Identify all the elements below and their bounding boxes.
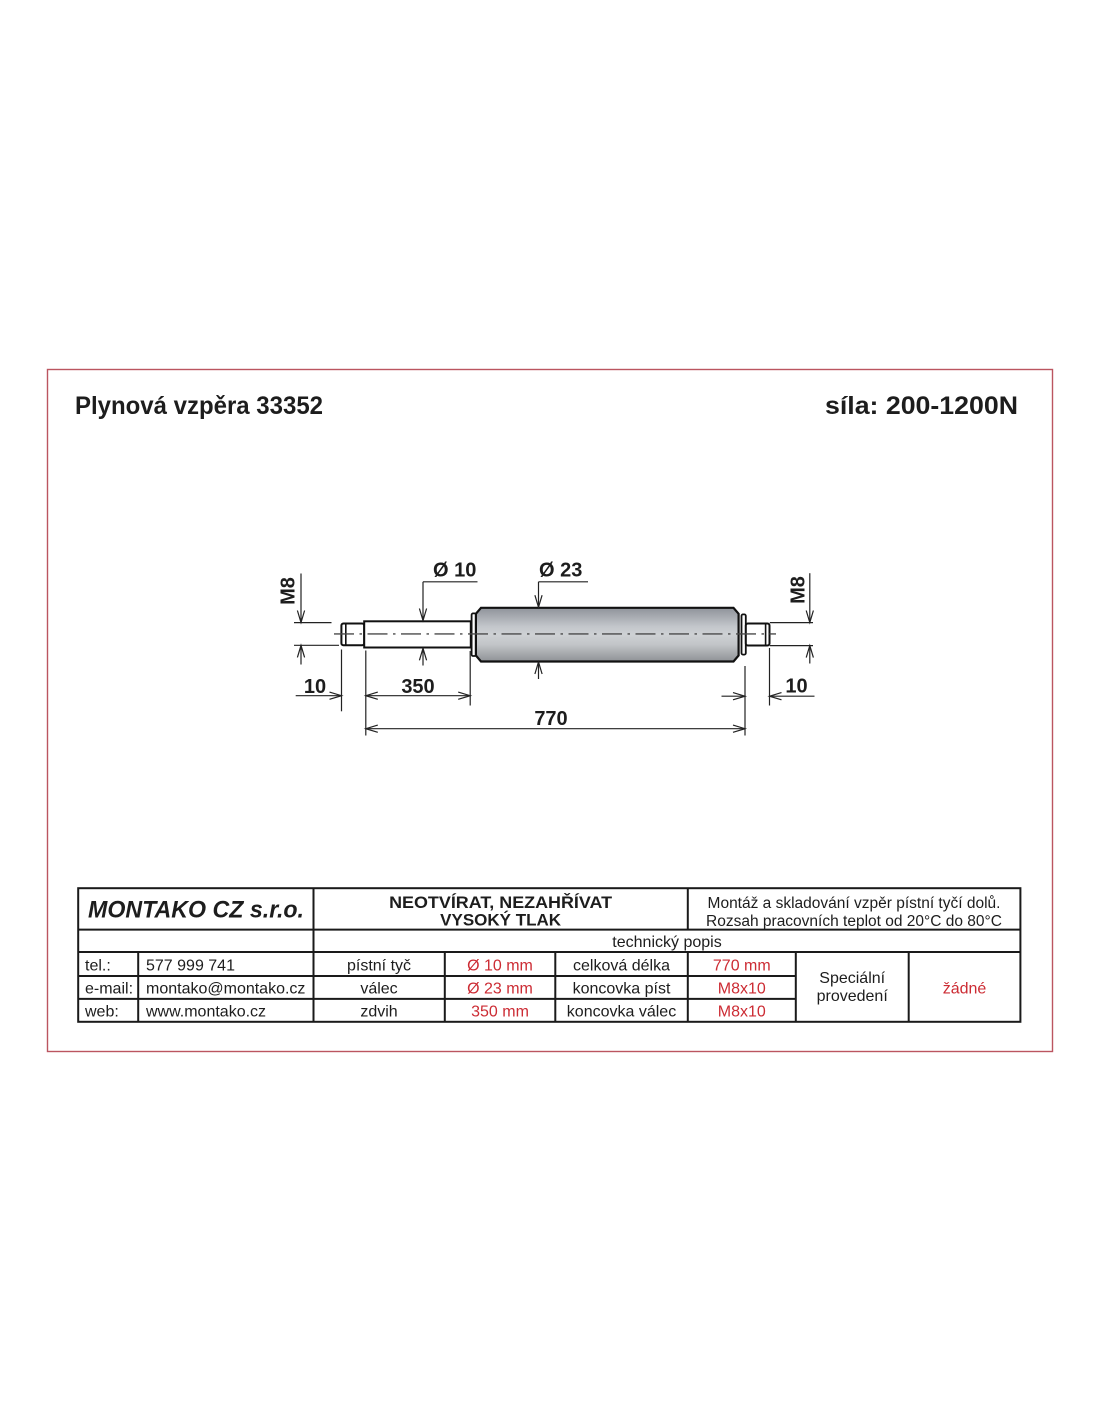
svg-text:Plynová vzpěra 33352: Plynová vzpěra 33352 (75, 392, 323, 420)
svg-text:M8: M8 (278, 577, 300, 605)
svg-text:web:: web: (84, 1004, 119, 1021)
svg-text:zdvih: zdvih (360, 1004, 397, 1021)
svg-text:pístní tyč: pístní tyč (347, 958, 411, 975)
svg-text:síla: 200-1200N: síla: 200-1200N (825, 392, 1018, 420)
svg-text:577 999 741: 577 999 741 (146, 958, 235, 975)
svg-text:válec: válec (360, 981, 397, 998)
svg-text:koncovka válec: koncovka válec (567, 1004, 676, 1021)
svg-text:350: 350 (401, 676, 434, 698)
svg-text:NEOTVÍRAT, NEZAHŘÍVAT: NEOTVÍRAT, NEZAHŘÍVAT (389, 893, 613, 912)
svg-text:Ø 10 mm: Ø 10 mm (467, 958, 533, 975)
svg-text:Speciální: Speciální (819, 970, 885, 987)
svg-text:technický popis: technický popis (612, 934, 721, 951)
svg-text:M8: M8 (788, 576, 810, 604)
svg-text:koncovka píst: koncovka píst (573, 981, 671, 998)
svg-text:Ø 23: Ø 23 (539, 560, 582, 582)
svg-text:provedení: provedení (817, 988, 889, 1005)
svg-text:10: 10 (785, 676, 807, 698)
svg-text:770: 770 (534, 708, 567, 730)
svg-text:montako@montako.cz: montako@montako.cz (146, 981, 305, 998)
svg-text:10: 10 (304, 676, 326, 698)
svg-text:VYSOKÝ TLAK: VYSOKÝ TLAK (440, 911, 562, 930)
svg-text:tel.:: tel.: (85, 958, 111, 975)
svg-text:M8x10: M8x10 (718, 981, 766, 998)
svg-text:Ø 23 mm: Ø 23 mm (467, 981, 533, 998)
svg-text:770 mm: 770 mm (713, 958, 771, 975)
svg-text:350 mm: 350 mm (471, 1004, 529, 1021)
svg-text:žádné: žádné (943, 981, 987, 998)
svg-text:Ø 10: Ø 10 (433, 560, 476, 582)
svg-text:www.montako.cz: www.montako.cz (145, 1004, 266, 1021)
svg-text:celková délka: celková délka (573, 958, 670, 975)
svg-text:Montáž a skladování vzpěr píst: Montáž a skladování vzpěr pístní tyčí do… (708, 895, 1001, 912)
svg-text:e-mail:: e-mail: (85, 981, 133, 998)
svg-text:Rozsah pracovních teplot od 20: Rozsah pracovních teplot od 20°C do 80°C (706, 913, 1002, 930)
svg-text:MONTAKO CZ s.r.o.: MONTAKO CZ s.r.o. (88, 897, 304, 924)
svg-text:M8x10: M8x10 (718, 1004, 766, 1021)
